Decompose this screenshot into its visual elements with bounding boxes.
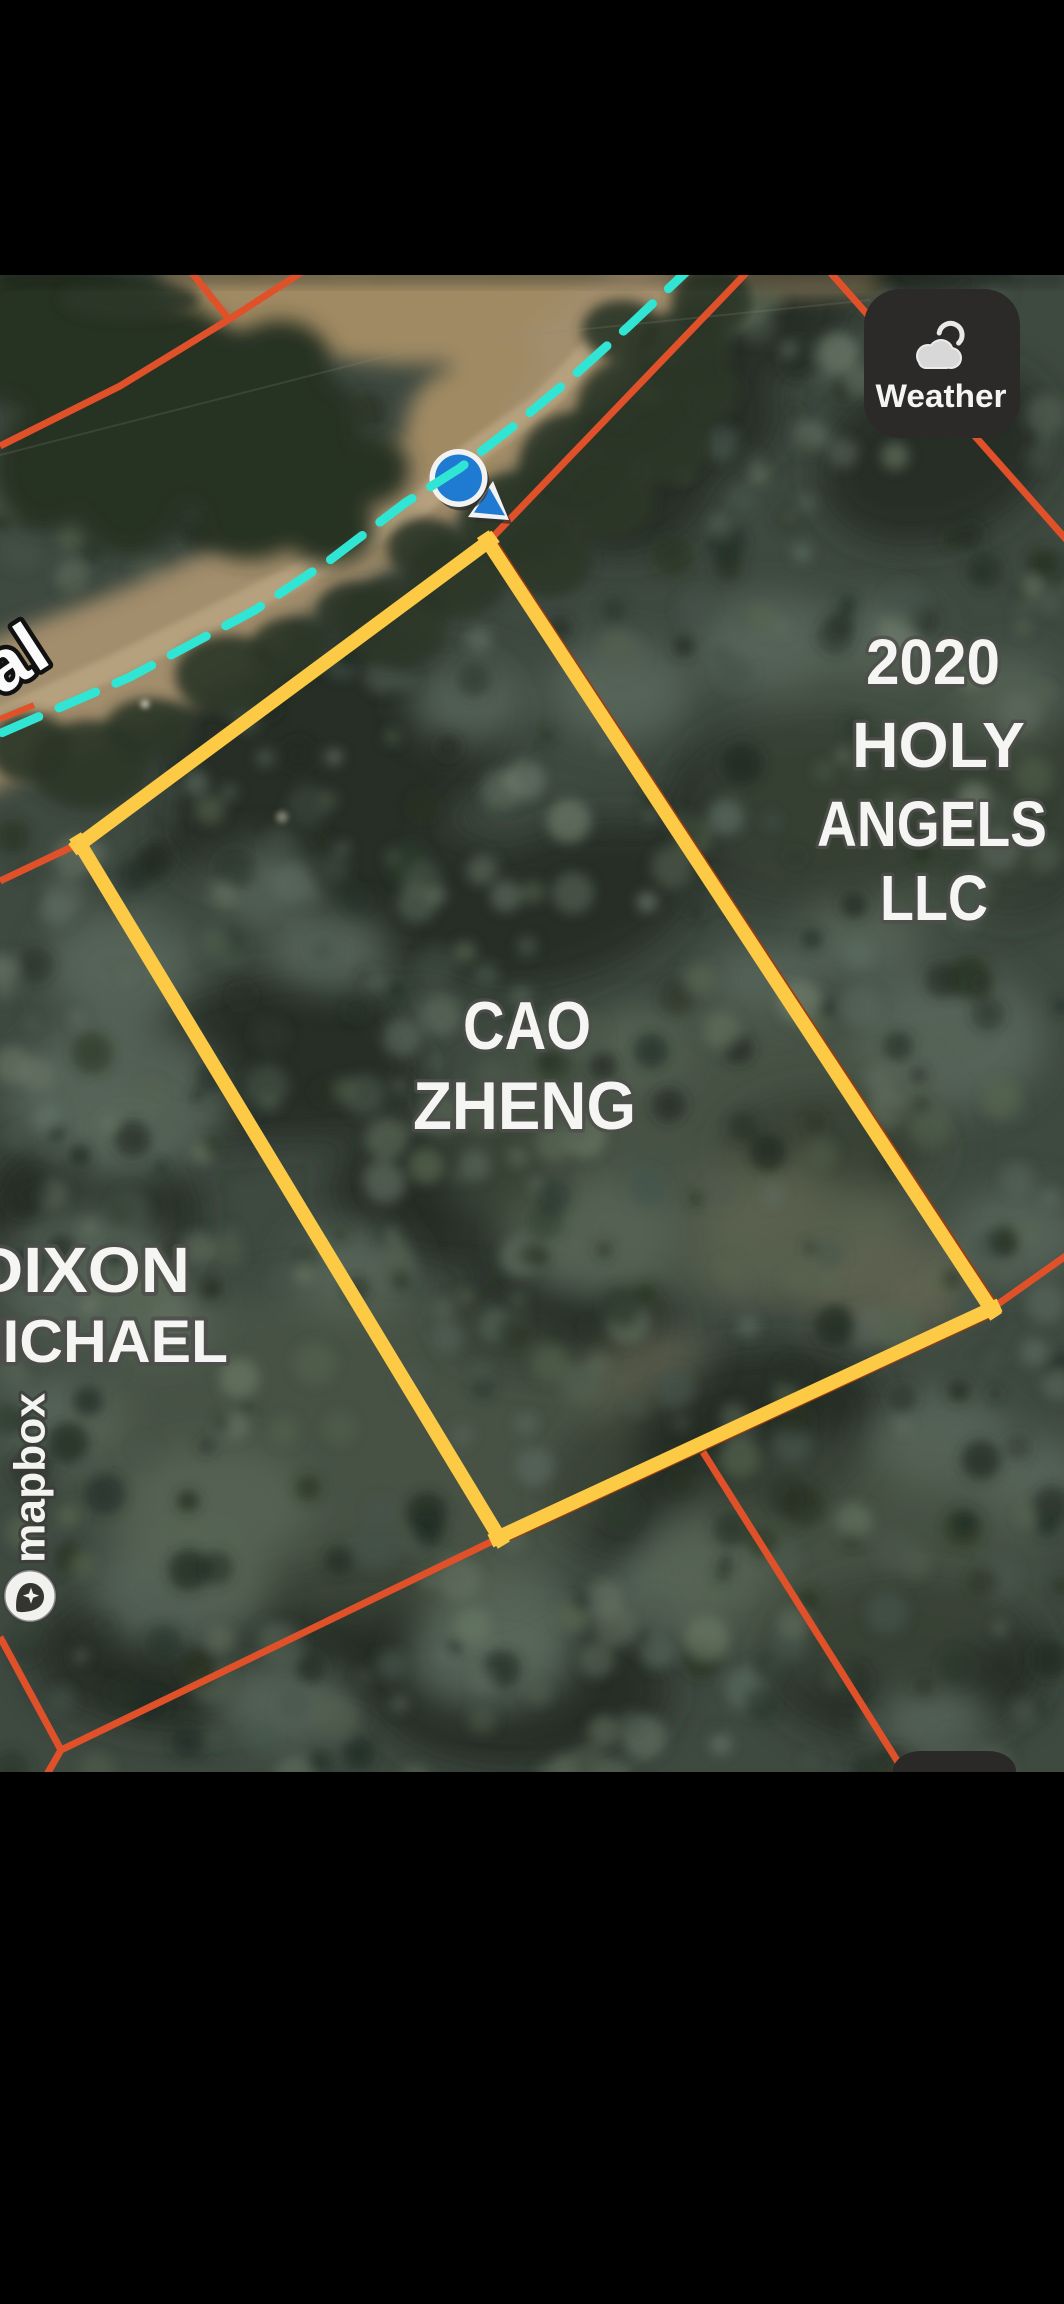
- svg-text:ZHENG: ZHENG: [413, 1068, 636, 1144]
- svg-text:MICHAEL: MICHAEL: [0, 1308, 228, 1375]
- svg-text:mapbox: mapbox: [7, 1393, 55, 1563]
- svg-text:ANGELS: ANGELS: [817, 788, 1047, 860]
- svg-text:HOLY: HOLY: [852, 709, 1025, 781]
- svg-text:DIXON: DIXON: [0, 1234, 190, 1306]
- svg-text:2020: 2020: [866, 626, 1000, 698]
- svg-text:CAO: CAO: [463, 988, 591, 1064]
- svg-text:Weather: Weather: [876, 378, 1007, 414]
- svg-text:LLC: LLC: [880, 862, 988, 934]
